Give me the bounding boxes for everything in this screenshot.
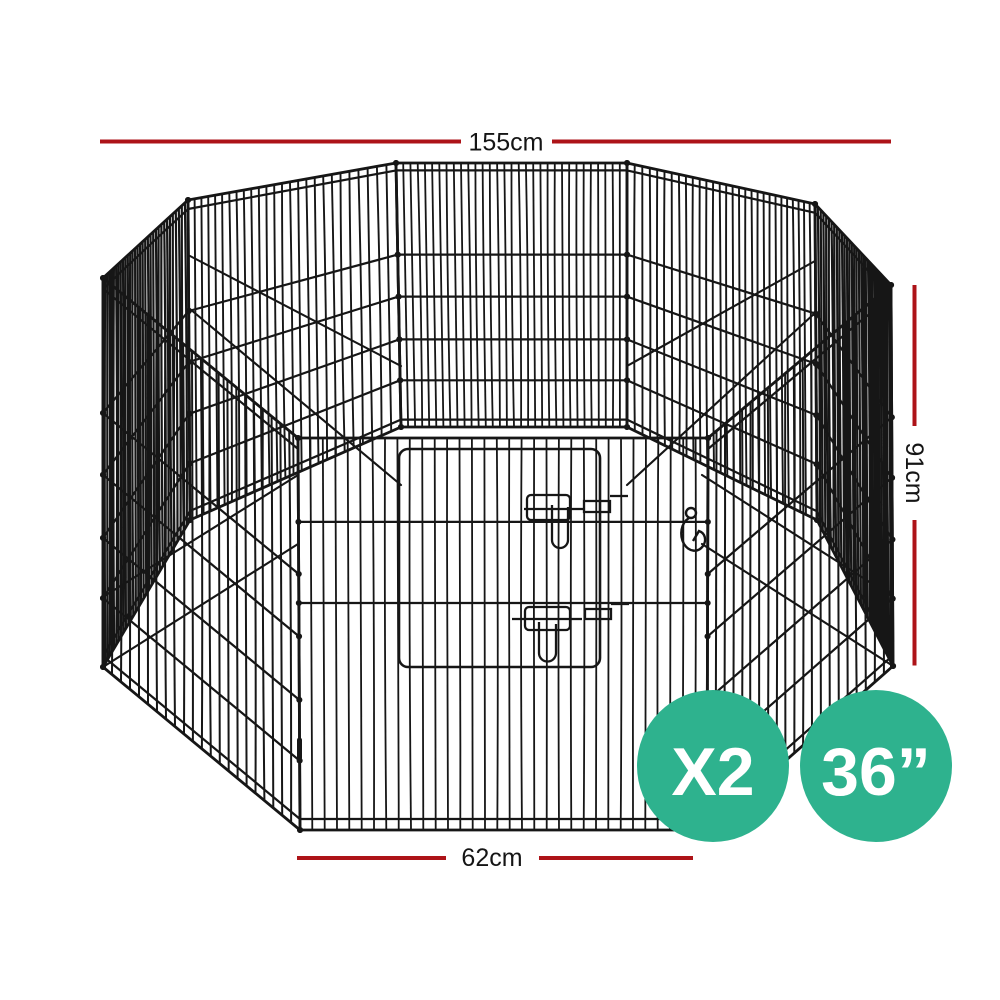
svg-text:36”: 36” <box>821 734 931 810</box>
svg-text:91cm: 91cm <box>900 442 928 503</box>
svg-text:X2: X2 <box>671 734 754 810</box>
svg-text:155cm: 155cm <box>468 129 543 157</box>
svg-text:62cm: 62cm <box>461 844 522 872</box>
